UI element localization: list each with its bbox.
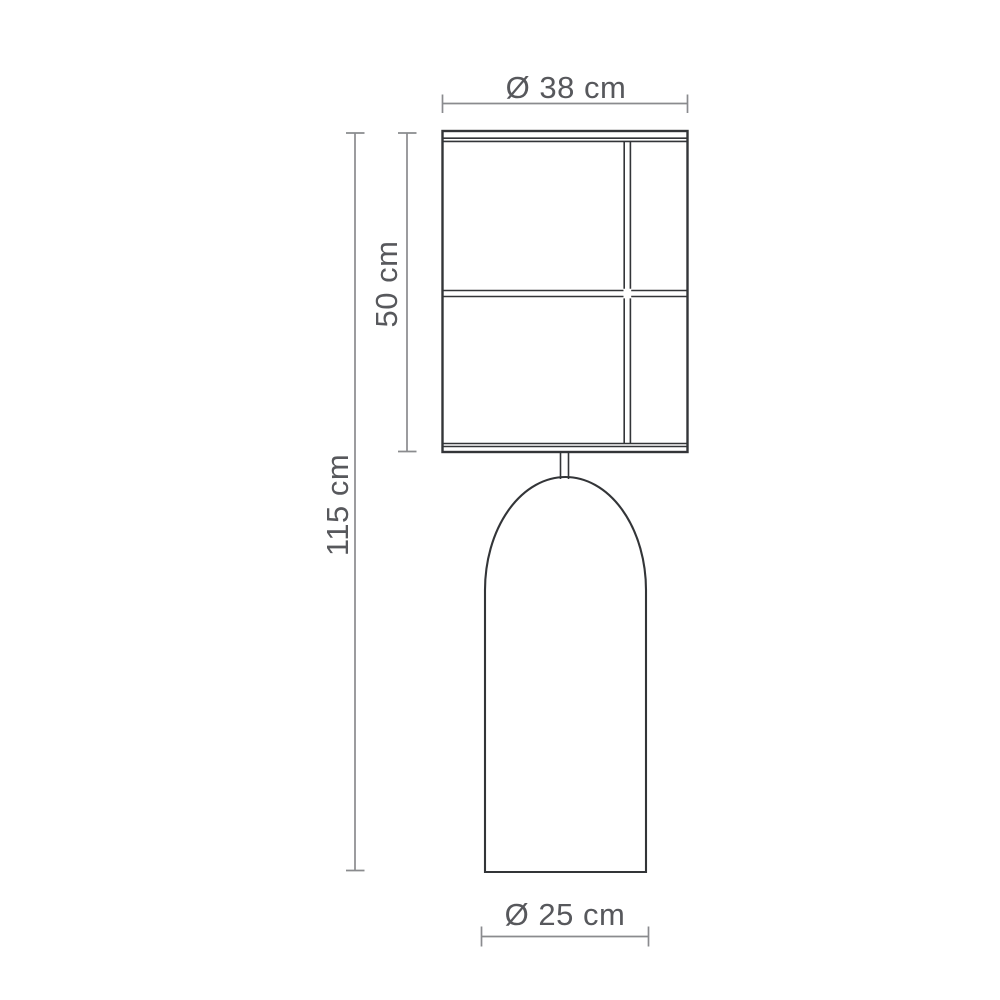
base-diameter-dimension: Ø 25 cm (482, 897, 649, 947)
total-height-label: 115 cm (320, 454, 355, 556)
shade-height-label: 50 cm (369, 241, 404, 328)
shade-outline (443, 131, 688, 452)
base-diameter-label: Ø 25 cm (505, 897, 626, 932)
lamp-drawing (443, 131, 688, 872)
lamp-technical-diagram-page: Ø 38 cm 115 cm 50 cm Ø 25 cm (0, 0, 1000, 1000)
shade-height-dimension: 50 cm (369, 133, 417, 452)
shade-diameter-label: Ø 38 cm (506, 70, 627, 105)
total-height-dimension: 115 cm (320, 133, 365, 871)
lamp-technical-diagram: Ø 38 cm 115 cm 50 cm Ø 25 cm (0, 0, 1000, 1000)
lamp-body-outline (485, 477, 646, 872)
shade-diameter-dimension: Ø 38 cm (443, 70, 688, 113)
